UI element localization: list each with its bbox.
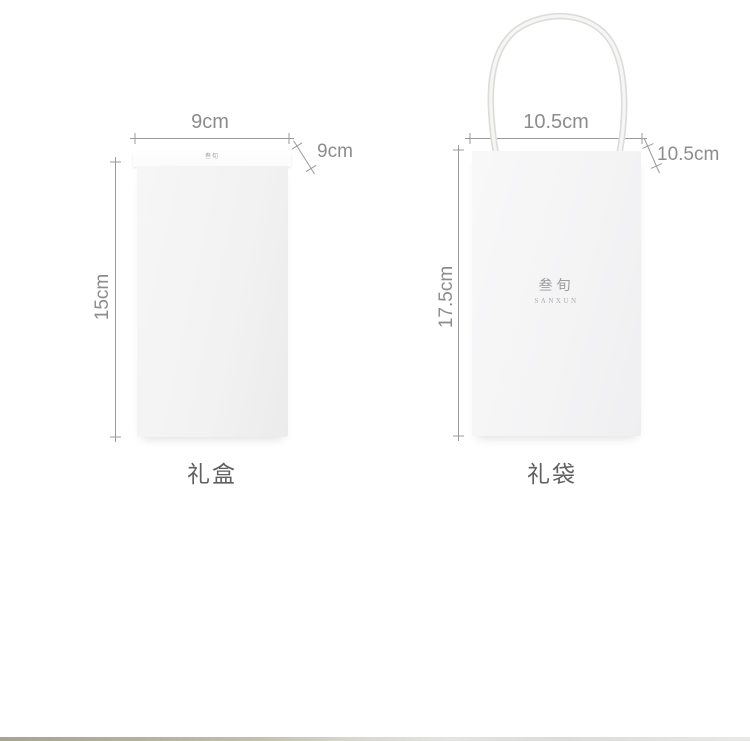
bottom-image-sliver	[0, 737, 750, 741]
bag-depth-tick-top	[643, 144, 654, 149]
bag-handle-rope-highlight	[491, 16, 624, 160]
bag-width-label: 10.5cm	[470, 112, 642, 132]
bag-handle-rope-outer	[491, 16, 624, 160]
box-depth-tick-top	[292, 143, 302, 149]
gift-box-lid-logo: 叁旬	[133, 152, 291, 161]
box-depth-label: 9cm	[317, 142, 353, 162]
box-width-label: 9cm	[130, 112, 290, 132]
box-depth-line	[294, 141, 315, 175]
bag-height-label: 17.5cm	[437, 262, 457, 332]
box-caption: 礼盒	[132, 455, 292, 489]
bag-caption: 礼袋	[466, 455, 638, 489]
gift-box-body	[137, 166, 288, 437]
gift-bag-body: 叁旬 SANXUN	[472, 151, 641, 436]
bag-depth-label: 10.5cm	[657, 145, 719, 165]
box-height-label: 15cm	[93, 262, 113, 332]
gift-bag-logo: 叁旬 SANXUN	[472, 275, 641, 305]
gift-bag-logo-latin: SANXUN	[472, 297, 641, 305]
bag-handle	[491, 16, 624, 160]
box-depth-tick-bottom	[306, 165, 316, 171]
product-dimension-diagram: 叁旬 叁旬 SANXUN 9cm 9cm 15cm 10.5cm 10.5cm …	[0, 0, 750, 741]
gift-bag-logo-chinese: 叁旬	[472, 275, 641, 295]
gift-box-lid: 叁旬	[133, 152, 291, 167]
